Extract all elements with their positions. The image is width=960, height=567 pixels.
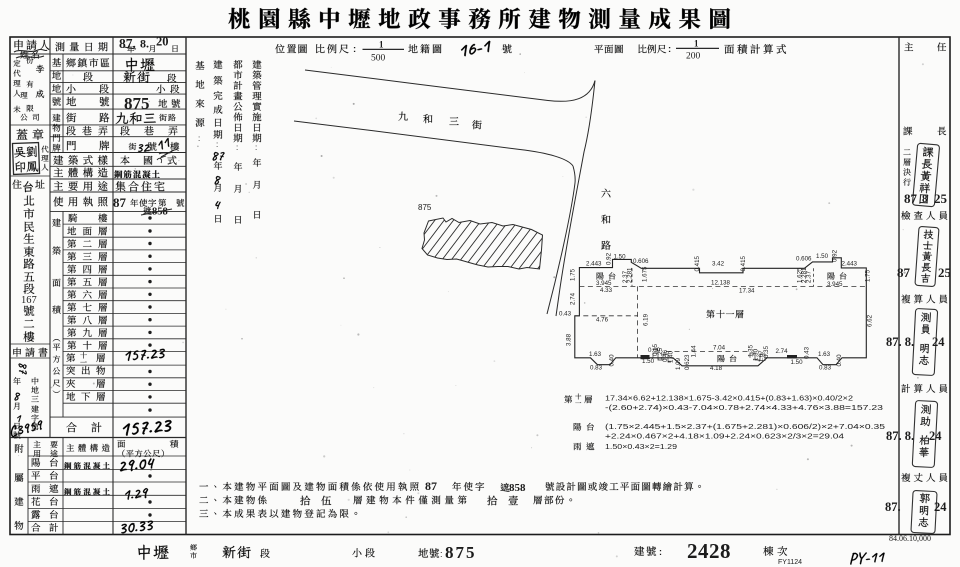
svg-text:0.83: 0.83 — [819, 364, 832, 371]
svg-text:4.76: 4.76 — [596, 317, 609, 324]
svg-text:875: 875 — [445, 543, 477, 562]
svg-text:3.42: 3.42 — [712, 261, 725, 268]
svg-text:875: 875 — [124, 94, 150, 113]
svg-text::: : — [255, 143, 257, 152]
svg-text:-(2.60+2.74)×0.43-7.04×0.78+2.: -(2.60+2.74)×0.43-7.04×0.78+2.74×4.33+4.… — [605, 403, 883, 412]
svg-text::: : — [659, 547, 662, 557]
svg-text:1.09: 1.09 — [675, 357, 682, 370]
svg-text::: : — [198, 134, 200, 143]
svg-text:2428: 2428 — [687, 539, 731, 563]
svg-text:20: 20 — [156, 35, 169, 49]
svg-text:3.945: 3.945 — [596, 280, 612, 287]
svg-text:8: 8 — [922, 193, 928, 205]
svg-text:0.92: 0.92 — [606, 252, 613, 265]
svg-text::: : — [216, 140, 218, 149]
svg-text:4.33: 4.33 — [600, 287, 613, 294]
svg-text::: : — [668, 44, 671, 55]
svg-text:87. 8.: 87. 8. — [886, 429, 914, 443]
svg-text:24: 24 — [932, 335, 945, 349]
svg-text:87: 87 — [425, 479, 437, 493]
svg-text:2.37: 2.37 — [806, 270, 813, 283]
svg-text:25: 25 — [938, 265, 952, 280]
svg-text:87: 87 — [904, 191, 918, 206]
svg-text:0.606: 0.606 — [633, 258, 649, 265]
svg-text:1: 1 — [694, 39, 699, 49]
svg-text:0.606: 0.606 — [796, 256, 812, 263]
svg-text:2.281: 2.281 — [627, 267, 634, 283]
svg-text:2.443: 2.443 — [842, 261, 858, 268]
svg-text:1.40: 1.40 — [668, 350, 675, 363]
svg-text:0.83: 0.83 — [590, 364, 603, 371]
svg-text:1.675: 1.675 — [642, 266, 649, 282]
svg-text:1.63: 1.63 — [818, 351, 831, 358]
svg-text:17.34: 17.34 — [739, 287, 755, 294]
svg-text:1.44: 1.44 — [691, 345, 698, 358]
svg-text:0.415: 0.415 — [694, 255, 701, 271]
svg-text:12.138: 12.138 — [711, 280, 730, 287]
svg-text:25: 25 — [934, 191, 948, 206]
svg-text:2.74: 2.74 — [570, 292, 577, 305]
svg-text:0.40: 0.40 — [836, 354, 843, 367]
svg-text:6.62: 6.62 — [867, 314, 874, 327]
svg-text:200: 200 — [686, 52, 701, 62]
svg-text:1.63: 1.63 — [589, 351, 602, 358]
svg-text:17.34×6.62+12.138×1.675-3.42×0: 17.34×6.62+12.138×1.675-3.42×0.415+(0.83… — [605, 394, 853, 403]
svg-text:87.: 87. — [885, 500, 901, 514]
svg-text:0.35: 0.35 — [763, 345, 770, 358]
svg-text:24: 24 — [929, 429, 942, 443]
svg-text:(1.75×2.445+1.5×2.37+(1.675+2.: (1.75×2.445+1.5×2.37+(1.675+2.281)×0.606… — [605, 422, 885, 431]
svg-text:7.04: 7.04 — [713, 345, 726, 352]
svg-text:858: 858 — [509, 482, 526, 494]
svg-text:1.50: 1.50 — [791, 359, 804, 366]
svg-text:24: 24 — [934, 500, 947, 514]
svg-text:87: 87 — [113, 195, 127, 210]
svg-text:167: 167 — [21, 295, 37, 306]
svg-text:+2.24×0.467×2+4.18×1.09+2.24×0: +2.24×0.467×2+4.18×1.09+2.24×0.623×2/3×2… — [605, 432, 844, 441]
svg-text:FY1124: FY1124 — [778, 559, 802, 566]
svg-text:0.43: 0.43 — [559, 311, 572, 318]
svg-text:0.415: 0.415 — [740, 255, 747, 271]
svg-text:0.623: 0.623 — [684, 354, 691, 370]
svg-text:1.50: 1.50 — [642, 358, 655, 365]
svg-text:87. 8.: 87. 8. — [886, 335, 914, 349]
svg-text:1.50: 1.50 — [614, 254, 627, 261]
svg-text:3.945: 3.945 — [827, 281, 843, 288]
svg-text::: : — [353, 44, 356, 55]
svg-text:1: 1 — [379, 40, 384, 50]
svg-text:1.50×0.43×2=1.29: 1.50×0.43×2=1.29 — [605, 442, 677, 451]
svg-text:84.06.10,000: 84.06.10,000 — [889, 534, 931, 543]
svg-text:0.40: 0.40 — [609, 354, 616, 367]
svg-text::: : — [440, 549, 443, 559]
svg-text:8.: 8. — [140, 37, 149, 51]
svg-text:0.43: 0.43 — [804, 346, 811, 359]
svg-text:6.19: 6.19 — [643, 313, 650, 326]
svg-text:875: 875 — [418, 203, 432, 212]
svg-text:0.92: 0.92 — [832, 249, 839, 262]
svg-text:500: 500 — [371, 54, 386, 64]
svg-text::: : — [236, 143, 238, 152]
svg-text:3.88: 3.88 — [566, 333, 573, 346]
svg-text:1.75: 1.75 — [865, 269, 872, 282]
svg-text:2.443: 2.443 — [586, 260, 602, 267]
svg-text:1.75: 1.75 — [570, 268, 577, 281]
svg-text:1.50: 1.50 — [816, 253, 829, 260]
svg-text:2.74: 2.74 — [776, 348, 789, 355]
svg-text:4.18: 4.18 — [710, 365, 723, 372]
